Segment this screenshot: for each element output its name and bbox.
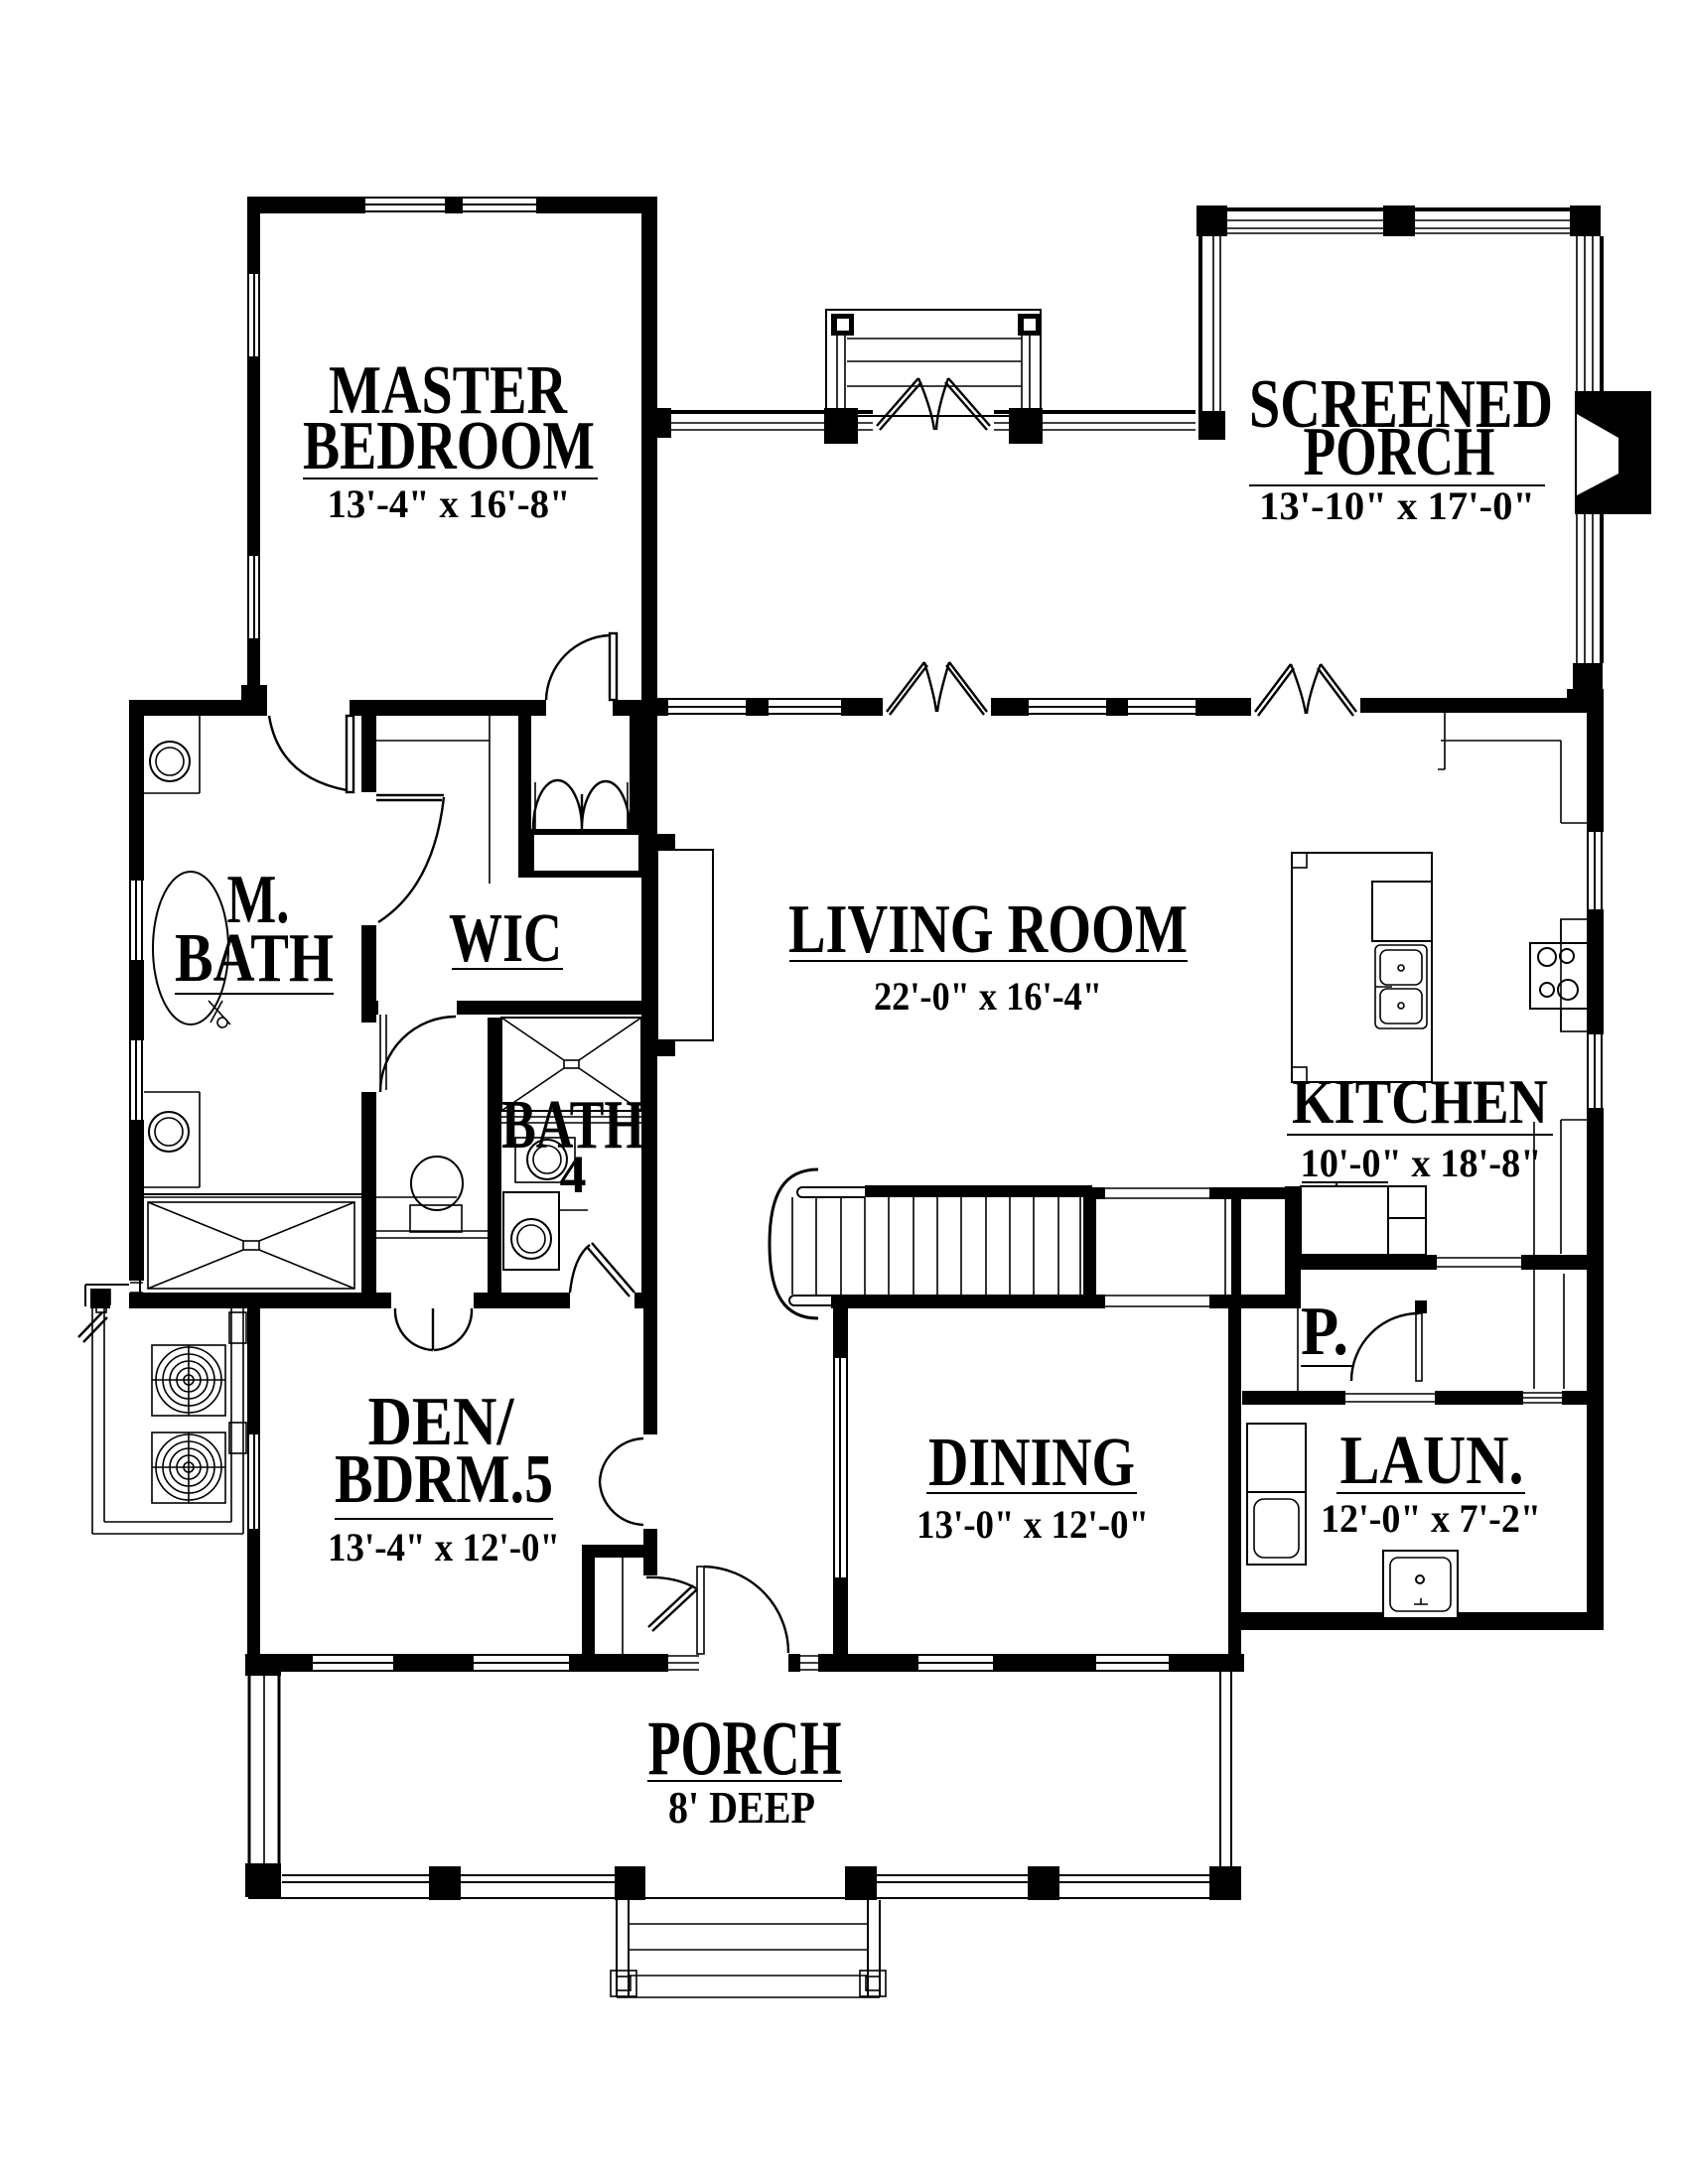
svg-text:BDRM.5: BDRM.5 [335,1441,553,1518]
svg-text:DINING: DINING [928,1425,1135,1501]
svg-text:13'-4" x 16'-8": 13'-4" x 16'-8" [328,481,571,526]
svg-text:12'-0" x 7'-2": 12'-0" x 7'-2" [1321,1496,1541,1541]
svg-text:WIC: WIC [449,900,562,977]
svg-text:22'-0" x 16'-4": 22'-0" x 16'-4" [874,974,1102,1019]
svg-text:LAUN.: LAUN. [1340,1423,1524,1499]
svg-text:PORCH: PORCH [1304,414,1495,490]
svg-text:PORCH: PORCH [648,1705,842,1791]
svg-text:LIVING ROOM: LIVING ROOM [788,891,1188,968]
svg-text:13'-0" x 12'-0": 13'-0" x 12'-0" [916,1502,1149,1547]
svg-text:BEDROOM: BEDROOM [303,408,595,484]
svg-text:BATH: BATH [175,920,334,997]
svg-text:P.: P. [1301,1294,1348,1370]
svg-text:13'-10" x 17'-0": 13'-10" x 17'-0" [1259,483,1535,528]
svg-text:8' DEEP: 8' DEEP [668,1782,815,1833]
svg-text:13'-4" x 12'-0": 13'-4" x 12'-0" [328,1525,560,1570]
svg-text:10'-0" x 18'-8": 10'-0" x 18'-8" [1301,1141,1542,1185]
svg-text:4: 4 [560,1145,587,1204]
svg-text:KITCHEN: KITCHEN [1292,1066,1548,1137]
